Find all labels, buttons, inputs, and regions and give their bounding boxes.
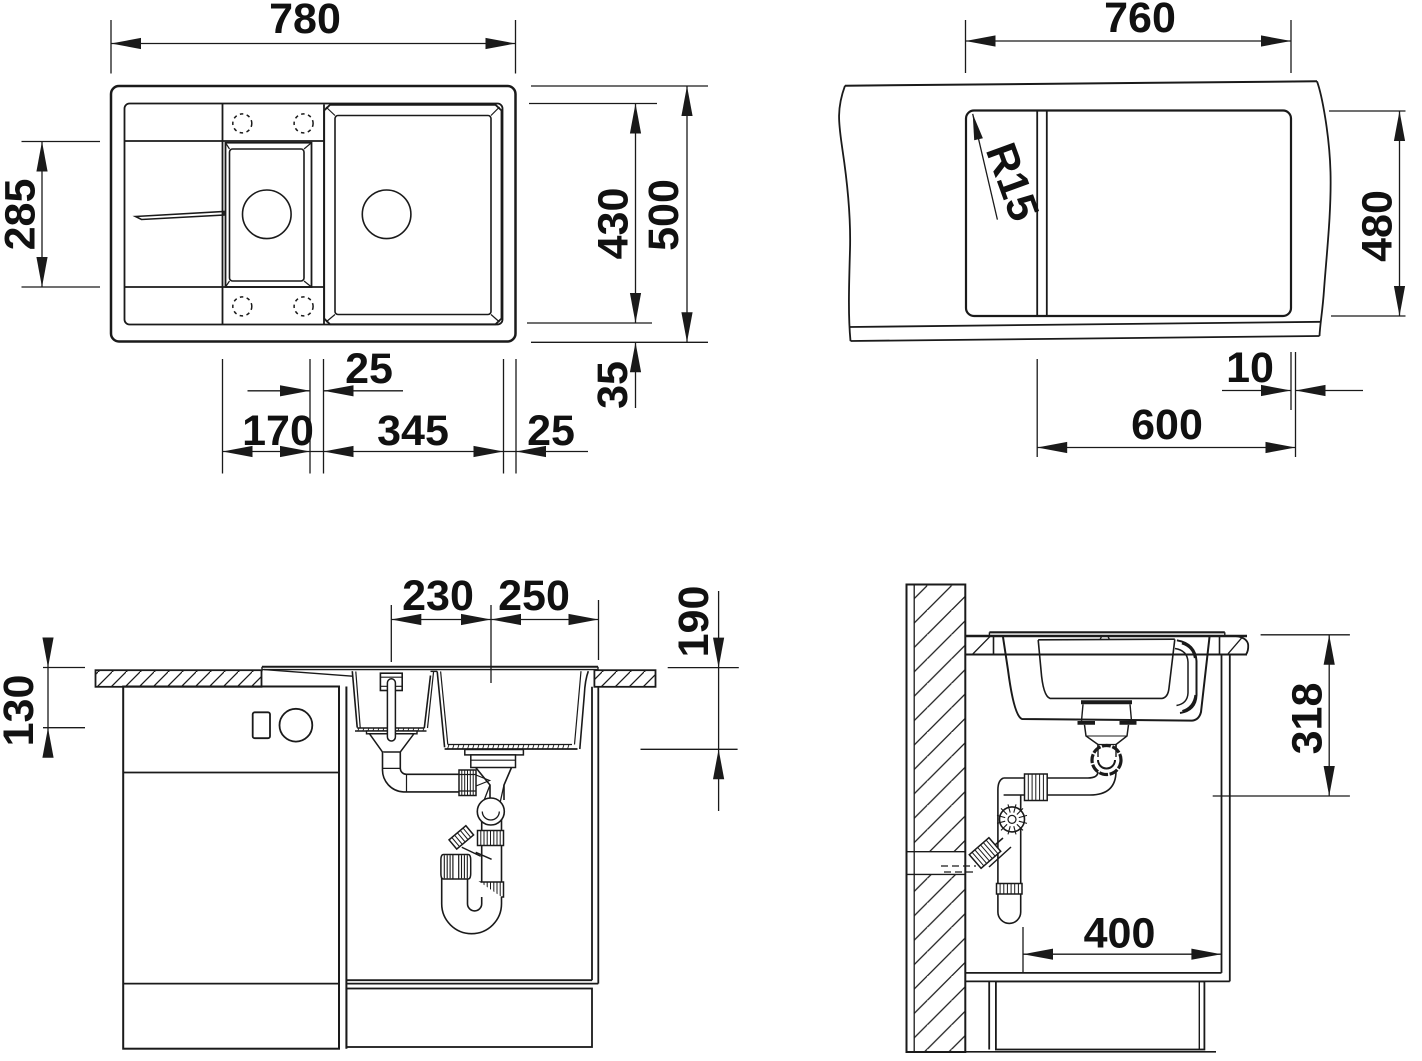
svg-text:170: 170 <box>242 407 314 455</box>
svg-text:600: 600 <box>1131 401 1203 449</box>
svg-text:500: 500 <box>640 179 688 251</box>
svg-text:25: 25 <box>527 407 575 455</box>
svg-text:35: 35 <box>589 361 637 409</box>
svg-text:780: 780 <box>269 0 341 43</box>
svg-text:250: 250 <box>498 572 570 620</box>
svg-text:345: 345 <box>377 407 449 455</box>
svg-text:430: 430 <box>590 188 638 260</box>
svg-text:25: 25 <box>345 345 393 393</box>
svg-text:190: 190 <box>670 586 718 658</box>
svg-text:10: 10 <box>1226 344 1274 392</box>
svg-text:130: 130 <box>0 675 43 747</box>
svg-text:400: 400 <box>1084 910 1156 958</box>
svg-text:480: 480 <box>1354 190 1402 262</box>
svg-text:760: 760 <box>1104 0 1176 42</box>
svg-text:230: 230 <box>402 572 474 620</box>
svg-text:318: 318 <box>1284 683 1332 755</box>
svg-text:285: 285 <box>0 179 45 251</box>
